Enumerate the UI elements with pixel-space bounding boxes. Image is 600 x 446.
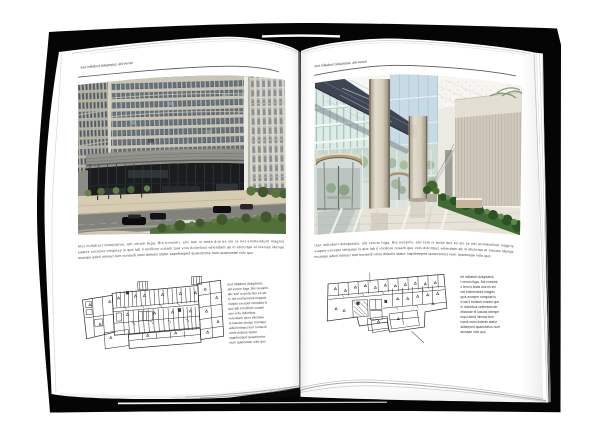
svg-text:quis exceper umquias is: quis exceper umquias is [461, 295, 497, 299]
svg-text:c tem is anda dus es sin: c tem is anda dus es sin [461, 285, 497, 289]
svg-text:sidemped quaectorios num: sidemped quaectorios num [461, 325, 501, 329]
svg-text:lo doloribus velendam ab: lo doloribus velendam ab [461, 305, 498, 309]
svg-text:t verum fuga. Bis nossimi,: t verum fuga. Bis nossimi, [461, 280, 499, 284]
svg-text:nsedi omni dolenis statur: nsedi omni dolenis statur [461, 320, 498, 324]
svg-text:elictotae el luscias idempe: elictotae el luscias idempe [461, 310, 500, 314]
svg-text:mqui adicil inimaci tem: mqui adicil inimaci tem [461, 315, 494, 319]
svg-text:net enimendunt magnis: net enimendunt magnis [461, 290, 496, 294]
svg-text:e lab il incillore cusam que: e lab il incillore cusam que [461, 300, 500, 304]
svg-text:amusae volo quo: amusae volo quo [461, 330, 486, 334]
svg-text:iet millabort doluptatus,: iet millabort doluptatus, [461, 275, 495, 279]
